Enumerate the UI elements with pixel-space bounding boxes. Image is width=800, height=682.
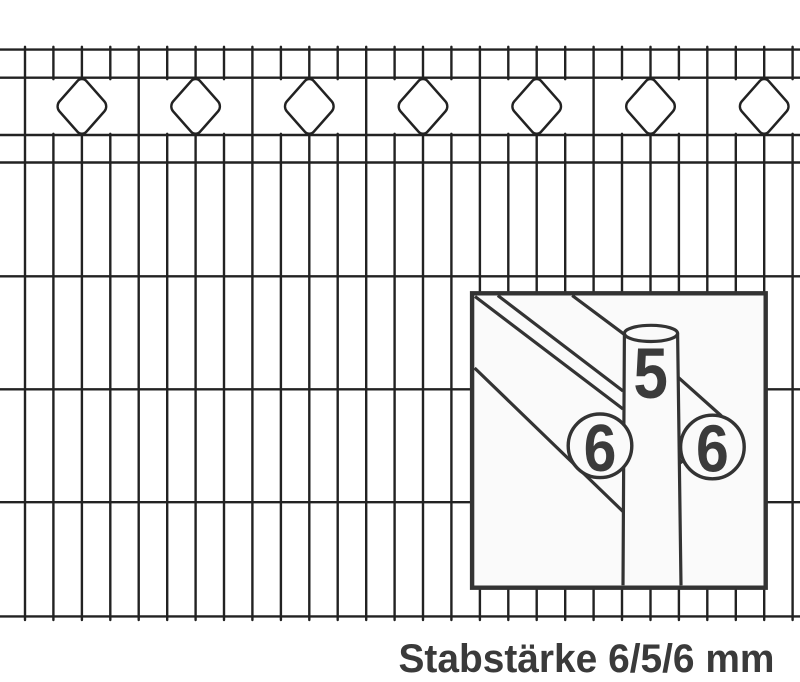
svg-text:6: 6 [696,412,729,486]
svg-text:6: 6 [584,412,617,486]
svg-text:5: 5 [633,335,668,414]
svg-text:Stabstärke 6/5/6 mm: Stabstärke 6/5/6 mm [399,637,775,681]
